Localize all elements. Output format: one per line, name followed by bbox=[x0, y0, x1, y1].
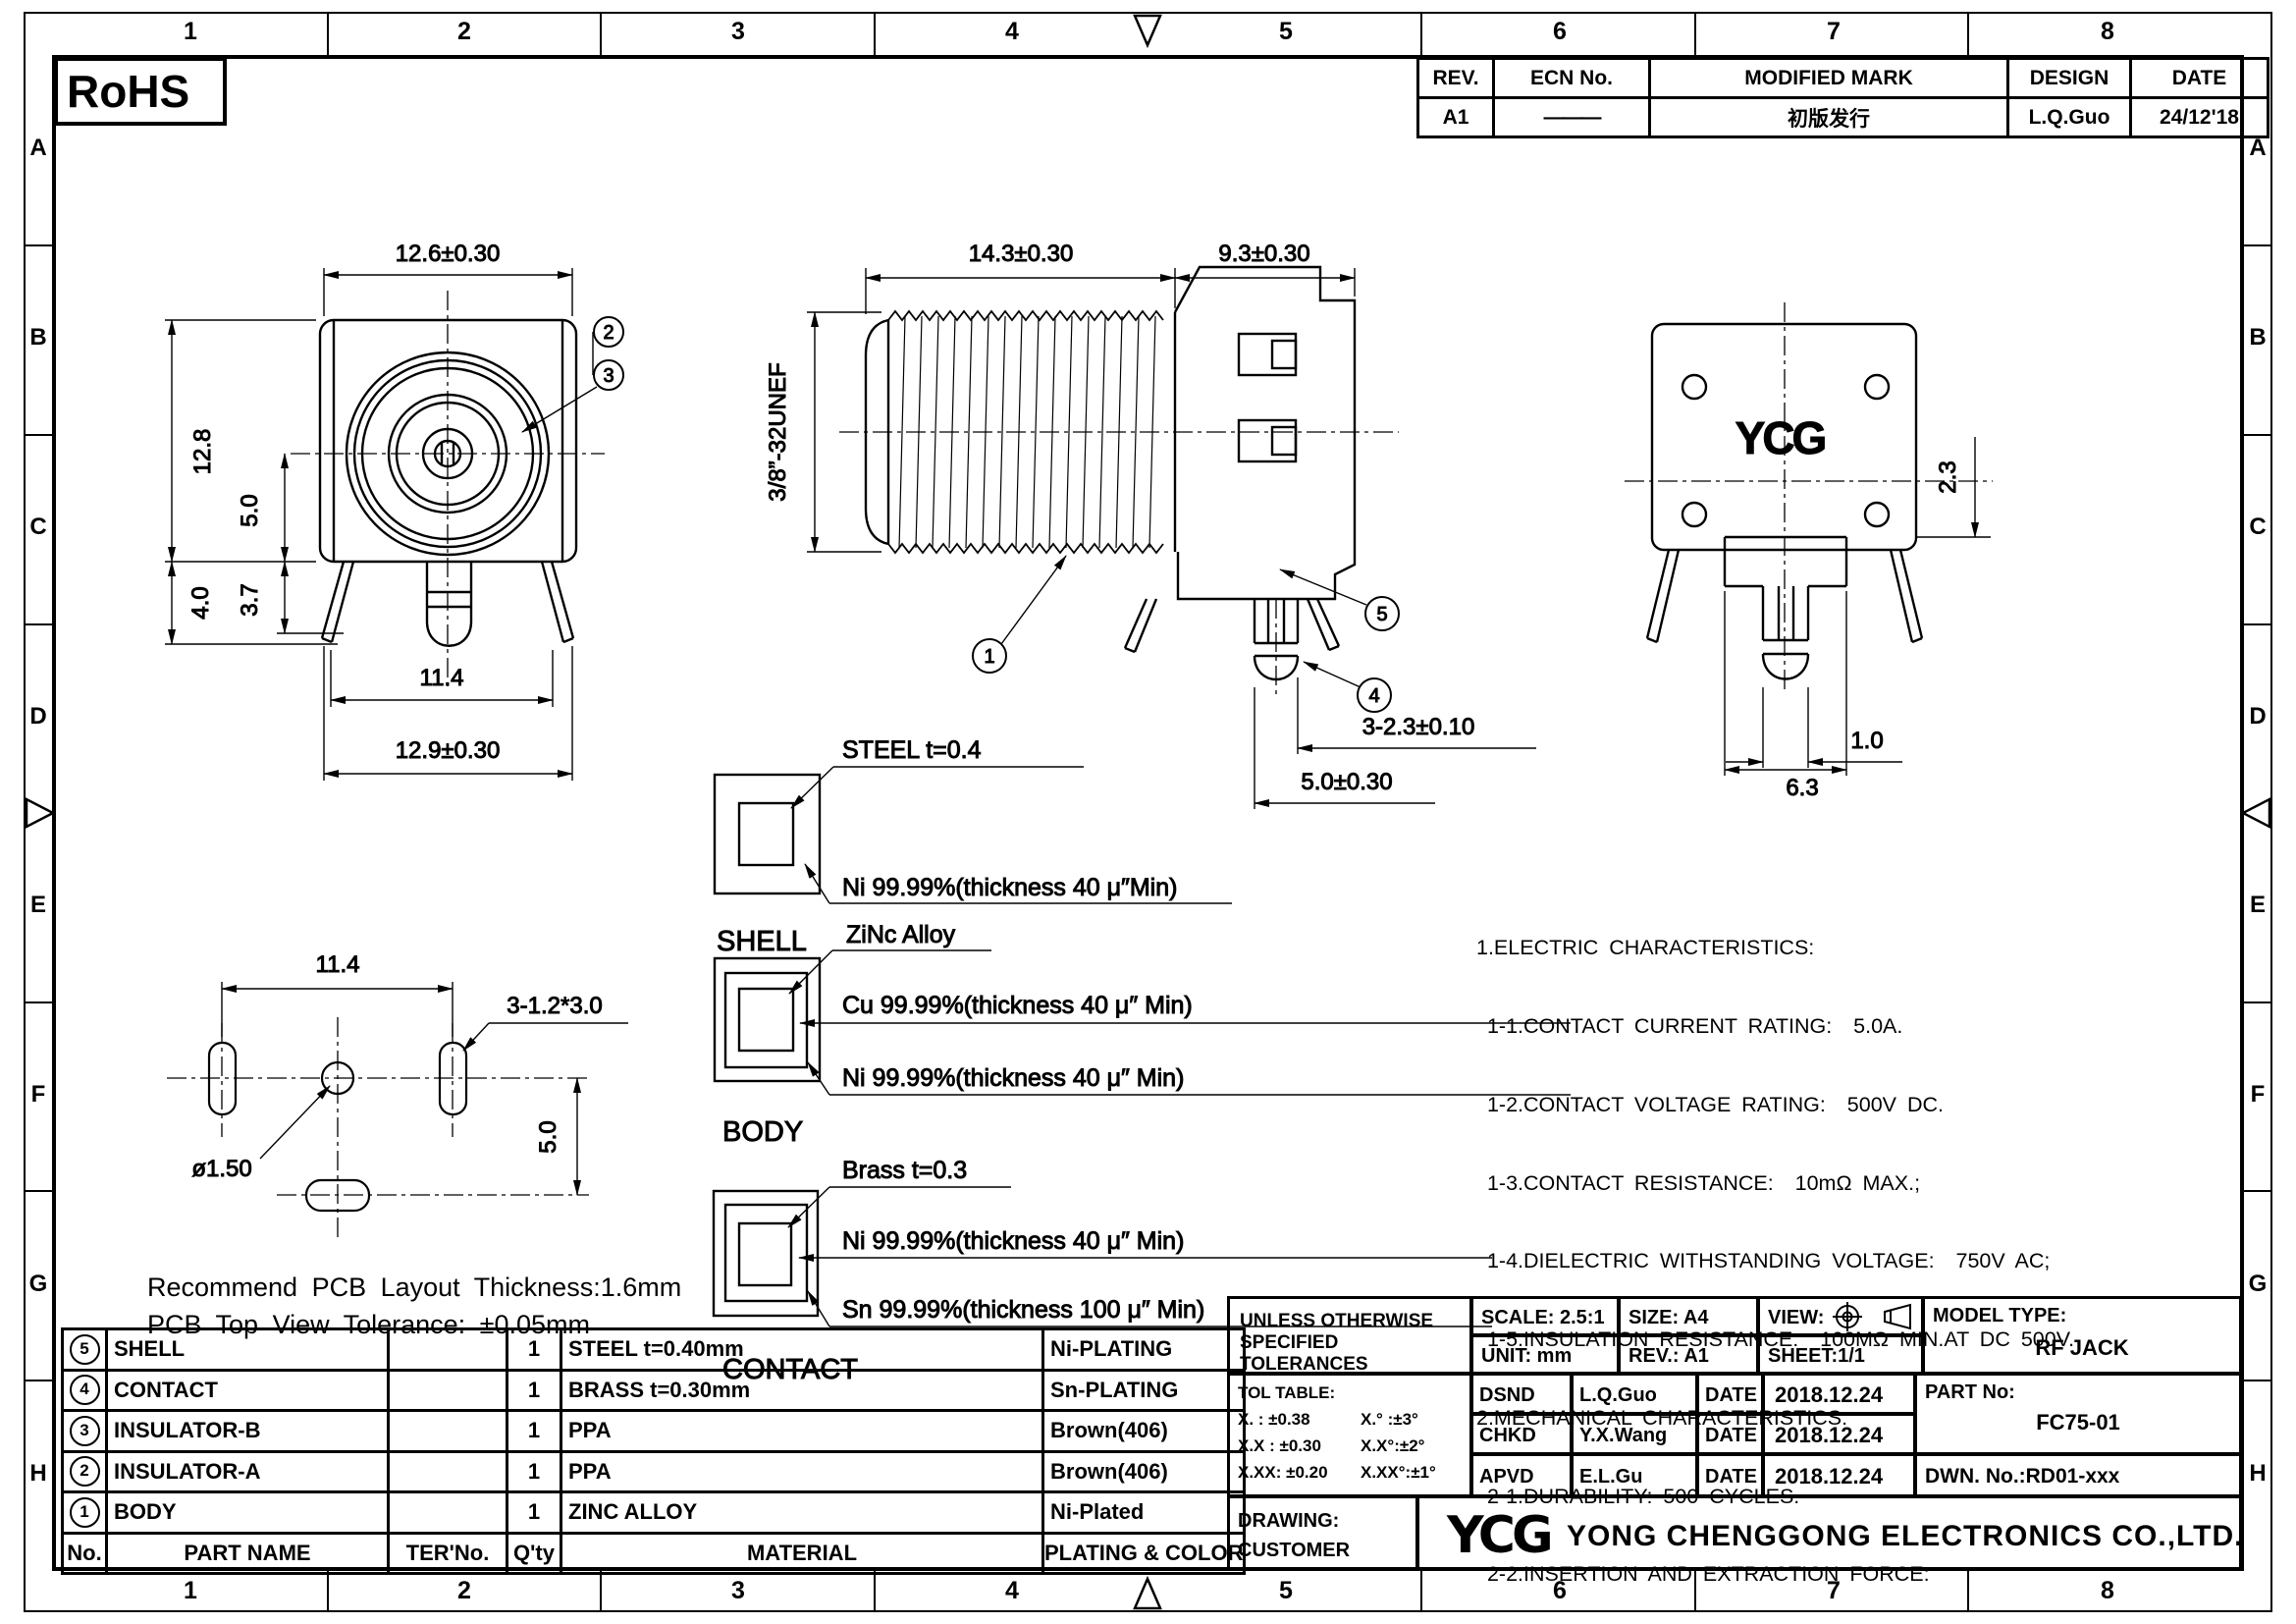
dimension-label: 12.9±0.30 bbox=[396, 737, 501, 764]
dimension-label: 4.0 bbox=[187, 586, 214, 619]
balloon-number: 5 bbox=[70, 1334, 100, 1365]
grid-row-label: D bbox=[27, 703, 49, 731]
ter-no-cell bbox=[389, 1411, 507, 1452]
qty-cell: 1 bbox=[507, 1411, 561, 1452]
table-row: 1 BODY 1 ZINC ALLOY Ni-Plated bbox=[63, 1492, 1245, 1534]
projection-symbol-icon bbox=[1830, 1302, 1920, 1331]
grid-row-label: D bbox=[2247, 703, 2269, 731]
tol-linear: X. : ±0.38 bbox=[1238, 1406, 1361, 1433]
part-no-label: PART No: bbox=[1917, 1376, 2239, 1404]
tol-table-title: TOL TABLE: bbox=[1238, 1380, 1469, 1406]
customer-label: CUSTOMER bbox=[1238, 1536, 1415, 1565]
balloon-5: 5 bbox=[1376, 604, 1387, 625]
plating-callout: Sn 99.99%(thickness 100 μ″ Min) bbox=[842, 1296, 1204, 1324]
material-header: MATERIAL bbox=[561, 1533, 1043, 1574]
material-callout: STEEL t=0.4 bbox=[842, 736, 982, 764]
revision-table: REV. ECN No. MODIFIED MARK DESIGN DATE A… bbox=[1416, 57, 2269, 138]
dimension-label: 3-1.2*3.0 bbox=[507, 993, 602, 1019]
drawing-label: DRAWING: bbox=[1238, 1506, 1415, 1536]
grid-row-label: E bbox=[2247, 892, 2269, 919]
grid-col-label: 3 bbox=[727, 18, 749, 46]
body-plating-detail: ZiNc Alloy Cu 99.99%(thickness 40 μ″ Min… bbox=[715, 921, 1571, 1148]
pcb-note-line: Recommend PCB Layout Thickness:1.6mm bbox=[147, 1269, 681, 1306]
part-name-cell: INSULATOR-B bbox=[107, 1411, 389, 1452]
balloon-number: 4 bbox=[70, 1375, 100, 1405]
grid-row-label: C bbox=[2247, 514, 2269, 541]
grid-col-label: 1 bbox=[180, 1577, 201, 1605]
tolerance-note: UNLESS OTHERWISE SPECIFIED TOLERANCES bbox=[1227, 1296, 1472, 1375]
material-cell: ZINC ALLOY bbox=[561, 1492, 1043, 1534]
tol-linear: X.XX: ±0.20 bbox=[1238, 1459, 1361, 1486]
chkd-label: CHKD bbox=[1470, 1413, 1573, 1455]
dimension-label: 5.0 bbox=[535, 1120, 561, 1153]
dimension-label: 1.0 bbox=[1850, 728, 1883, 754]
dimension-label: 3-2.3±0.10 bbox=[1362, 714, 1475, 740]
drawing-customer-cell: DRAWING: CUSTOMER bbox=[1227, 1495, 1418, 1571]
dimension-label: 11.4 bbox=[420, 665, 464, 691]
spec-line: 1-4.DIELECTRIC WITHSTANDING VOLTAGE: 750… bbox=[1476, 1248, 2105, 1274]
dimension-label: 12.8 bbox=[189, 429, 216, 475]
plating-callout: Ni 99.99%(thickness 40 μ″ Min) bbox=[842, 1064, 1184, 1092]
qty-cell: 1 bbox=[507, 1370, 561, 1411]
tol-row: X.X : ±0.30X.X°:±2° bbox=[1238, 1433, 1469, 1459]
balloon-number: 2 bbox=[70, 1456, 100, 1487]
qty-cell: 1 bbox=[507, 1492, 561, 1534]
grid-row-label: A bbox=[27, 135, 49, 162]
plating-cell: Brown(406) bbox=[1043, 1411, 1245, 1452]
part-name-cell: BODY bbox=[107, 1492, 389, 1534]
balloon-2: 2 bbox=[603, 322, 614, 344]
part-name-cell: CONTACT bbox=[107, 1370, 389, 1411]
plating-cell: Brown(406) bbox=[1043, 1451, 1245, 1492]
tol-linear: X.X : ±0.30 bbox=[1238, 1433, 1361, 1459]
grid-row-label: F bbox=[27, 1081, 49, 1109]
rohs-badge: RoHS bbox=[54, 57, 227, 126]
date-label: DATE bbox=[1696, 1413, 1764, 1455]
part-name-cell: INSULATOR-A bbox=[107, 1451, 389, 1492]
body-detail-title: BODY bbox=[722, 1116, 803, 1148]
dsnd-date: 2018.12.24 bbox=[1762, 1373, 1916, 1415]
company-name: YONG CHENGGONG ELECTRONICS CO.,LTD. bbox=[1567, 1520, 2242, 1553]
plating-cell: Sn-PLATING bbox=[1043, 1370, 1245, 1411]
apvd-date: 2018.12.24 bbox=[1762, 1453, 1916, 1497]
model-type-value: RF JACK bbox=[1925, 1335, 2239, 1361]
grid-col-label: 3 bbox=[727, 1577, 749, 1605]
spec-line: 1-1.CONTACT CURRENT RATING: 5.0A. bbox=[1476, 1013, 2105, 1040]
view-field: VIEW: bbox=[1757, 1296, 1924, 1336]
rev-col-header: REV. bbox=[1418, 59, 1494, 98]
grid-col-label: 6 bbox=[1549, 18, 1571, 46]
date-col-header: DATE bbox=[2131, 59, 2269, 98]
material-cell: PPA bbox=[561, 1451, 1043, 1492]
tol-angular: X.XX°:±1° bbox=[1361, 1463, 1436, 1482]
dimension-label: 2.3 bbox=[1935, 460, 1961, 493]
parts-table: 5 SHELL 1 STEEL t=0.40mm Ni-PLATING 4 CO… bbox=[61, 1327, 1246, 1575]
front-view: 12.6±0.30 12.8 5.0 4.0 3.7 11.4 12.9±0.3… bbox=[165, 241, 623, 781]
plating-callout: Cu 99.99%(thickness 40 μ″ Min) bbox=[842, 992, 1193, 1019]
grid-row-label: A bbox=[2247, 135, 2269, 162]
qty-cell: 1 bbox=[507, 1329, 561, 1371]
dimension-label: 12.6±0.30 bbox=[396, 241, 501, 267]
table-row: 4 CONTACT 1 BRASS t=0.30mm Sn-PLATING bbox=[63, 1370, 1245, 1411]
dimension-label: 5.0±0.30 bbox=[1301, 769, 1392, 795]
ter-no-cell bbox=[389, 1492, 507, 1534]
chkd-value: Y.X.Wang bbox=[1571, 1413, 1698, 1455]
apvd-value: E.L.Gu bbox=[1571, 1453, 1698, 1497]
dsnd-label: DSND bbox=[1470, 1373, 1573, 1415]
grid-row-label: G bbox=[2247, 1271, 2269, 1298]
dimension-label: ø1.50 bbox=[191, 1156, 251, 1182]
part-name-cell: SHELL bbox=[107, 1329, 389, 1371]
material-callout: Brass t=0.3 bbox=[842, 1157, 967, 1184]
qty-cell: 1 bbox=[507, 1451, 561, 1492]
design-value: L.Q.Guo bbox=[2008, 98, 2131, 137]
grid-col-label: 2 bbox=[454, 18, 475, 46]
plating-callout: Ni 99.99%(thickness 40 μ″ Min) bbox=[842, 1227, 1184, 1255]
date-label: DATE bbox=[1696, 1373, 1764, 1415]
spec-line: 1-3.CONTACT RESISTANCE: 10mΩ MAX.; bbox=[1476, 1170, 2105, 1197]
ecn-col-header: ECN No. bbox=[1494, 59, 1650, 98]
balloon-3: 3 bbox=[603, 365, 614, 387]
balloon-number: 1 bbox=[70, 1497, 100, 1528]
grid-row-label: H bbox=[2247, 1460, 2269, 1488]
spec-line: 1-2.CONTACT VOLTAGE RATING: 500V DC. bbox=[1476, 1092, 2105, 1118]
plating-cell: Ni-Plated bbox=[1043, 1492, 1245, 1534]
size-field: SIZE: A4 bbox=[1618, 1296, 1759, 1336]
plating-header: PLATING & COLOR bbox=[1043, 1533, 1245, 1574]
table-row: 2 INSULATOR-A 1 PPA Brown(406) bbox=[63, 1451, 1245, 1492]
grid-col-label: 4 bbox=[1001, 1577, 1023, 1605]
ter-no-cell bbox=[389, 1370, 507, 1411]
spec-line: 1.ELECTRIC CHARACTERISTICS: bbox=[1476, 935, 2105, 961]
date-label: DATE bbox=[1696, 1453, 1764, 1497]
balloon-4: 4 bbox=[1368, 685, 1379, 707]
dimension-label: 3.7 bbox=[237, 583, 263, 616]
grid-row-label: C bbox=[27, 514, 49, 541]
rear-view: 2.3 1.0 6.3 YCG bbox=[1625, 302, 1993, 801]
view-label: VIEW: bbox=[1768, 1307, 1824, 1328]
dimension-label: 9.3±0.30 bbox=[1218, 241, 1309, 267]
sheet-field: SHEET:1/1 bbox=[1757, 1334, 1924, 1375]
design-col-header: DESIGN bbox=[2008, 59, 2131, 98]
material-cell: BRASS t=0.30mm bbox=[561, 1370, 1043, 1411]
date-value: 24/12'18 bbox=[2131, 98, 2269, 137]
grid-row-label: G bbox=[27, 1271, 49, 1298]
grid-col-label: 5 bbox=[1275, 18, 1297, 46]
rev-value: A1 bbox=[1418, 98, 1494, 137]
grid-row-label: B bbox=[2247, 324, 2269, 352]
tol-row: X.XX: ±0.20X.XX°:±1° bbox=[1238, 1459, 1469, 1486]
tolerance-note-line: UNLESS OTHERWISE bbox=[1240, 1311, 1469, 1332]
grid-col-label: 2 bbox=[454, 1577, 475, 1605]
dimension-label: 11.4 bbox=[316, 951, 360, 978]
material-cell: STEEL t=0.40mm bbox=[561, 1329, 1043, 1371]
chkd-date: 2018.12.24 bbox=[1762, 1413, 1916, 1455]
tol-angular: X.° :±3° bbox=[1361, 1410, 1418, 1429]
material-callout: ZiNc Alloy bbox=[846, 921, 956, 948]
tol-row: X. : ±0.38X.° :±3° bbox=[1238, 1406, 1469, 1433]
title-block: UNLESS OTHERWISE SPECIFIED TOLERANCES SC… bbox=[1227, 1296, 2242, 1571]
table-row: 3 INSULATOR-B 1 PPA Brown(406) bbox=[63, 1411, 1245, 1452]
dwn-no-field: DWN. No.:RD01-xxx bbox=[1914, 1453, 2242, 1497]
dimension-label: 5.0 bbox=[237, 494, 263, 526]
modified-mark-value: 初版发行 bbox=[1650, 98, 2008, 137]
ecn-value: ——— bbox=[1494, 98, 1650, 137]
qty-header: Q'ty bbox=[507, 1533, 561, 1574]
part-name-header: PART NAME bbox=[107, 1533, 389, 1574]
table-row: 5 SHELL 1 STEEL t=0.40mm Ni-PLATING bbox=[63, 1329, 1245, 1371]
grid-col-label: 4 bbox=[1001, 18, 1023, 46]
part-no-cell: PART No: FC75-01 bbox=[1914, 1373, 2242, 1455]
side-view: 14.3±0.30 9.3±0.30 3/8”-32UNEF 1 5 4 3-2… bbox=[765, 241, 1536, 809]
part-no-value: FC75-01 bbox=[1917, 1410, 2239, 1435]
mark-col-header: MODIFIED MARK bbox=[1650, 59, 2008, 98]
model-type-label: MODEL TYPE: bbox=[1925, 1299, 2239, 1327]
scale-field: SCALE: 2.5:1 bbox=[1470, 1296, 1620, 1336]
tolerance-table: TOL TABLE: X. : ±0.38X.° :±3° X.X : ±0.3… bbox=[1227, 1373, 1472, 1497]
dimension-label: 14.3±0.30 bbox=[969, 241, 1074, 267]
no-header: No. bbox=[63, 1533, 107, 1574]
balloon-number: 3 bbox=[70, 1416, 100, 1446]
apvd-label: APVD bbox=[1470, 1453, 1573, 1497]
grid-row-label: F bbox=[2247, 1081, 2269, 1109]
ter-no-header: TER'No. bbox=[389, 1533, 507, 1574]
unit-field: UNIT: mm bbox=[1470, 1334, 1620, 1375]
company-logo: YCG bbox=[1447, 1506, 1550, 1565]
tolerance-note-line: SPECIFIED TOLERANCES bbox=[1240, 1332, 1469, 1375]
ter-no-cell bbox=[389, 1451, 507, 1492]
table-header-row: No. PART NAME TER'No. Q'ty MATERIAL PLAT… bbox=[63, 1533, 1245, 1574]
pcb-layout-view: 11.4 3-1.2*3.0 5.0 ø1.50 bbox=[167, 951, 628, 1239]
tol-angular: X.X°:±2° bbox=[1361, 1436, 1424, 1455]
shell-plating-detail: STEEL t=0.4 Ni 99.99%(thickness 40 μ″Min… bbox=[715, 736, 1232, 957]
grid-col-label: 5 bbox=[1275, 1577, 1297, 1605]
model-type-cell: MODEL TYPE: RF JACK bbox=[1922, 1296, 2242, 1375]
grid-col-label: 8 bbox=[2097, 18, 2118, 46]
grid-row-label: H bbox=[27, 1460, 49, 1488]
material-cell: PPA bbox=[561, 1411, 1043, 1452]
grid-col-label: 7 bbox=[1823, 18, 1844, 46]
grid-row-label: B bbox=[27, 324, 49, 352]
dsnd-value: L.Q.Guo bbox=[1571, 1373, 1698, 1415]
thread-spec-label: 3/8”-32UNEF bbox=[765, 362, 791, 501]
dimension-label: 6.3 bbox=[1786, 775, 1818, 801]
ycg-logo: YCG bbox=[1735, 412, 1825, 463]
shell-detail-title: SHELL bbox=[717, 926, 807, 957]
rev-field: REV.: A1 bbox=[1618, 1334, 1759, 1375]
drawing-sheet: 12.6±0.30 12.8 5.0 4.0 3.7 11.4 12.9±0.3… bbox=[0, 0, 2296, 1624]
grid-row-label: E bbox=[27, 892, 49, 919]
company-cell: YCG YONG CHENGGONG ELECTRONICS CO.,LTD. bbox=[1416, 1495, 2242, 1571]
ter-no-cell bbox=[389, 1329, 507, 1371]
balloon-1: 1 bbox=[984, 646, 994, 668]
grid-col-label: 1 bbox=[180, 18, 201, 46]
plating-callout: Ni 99.99%(thickness 40 μ″Min) bbox=[842, 874, 1177, 901]
plating-cell: Ni-PLATING bbox=[1043, 1329, 1245, 1371]
